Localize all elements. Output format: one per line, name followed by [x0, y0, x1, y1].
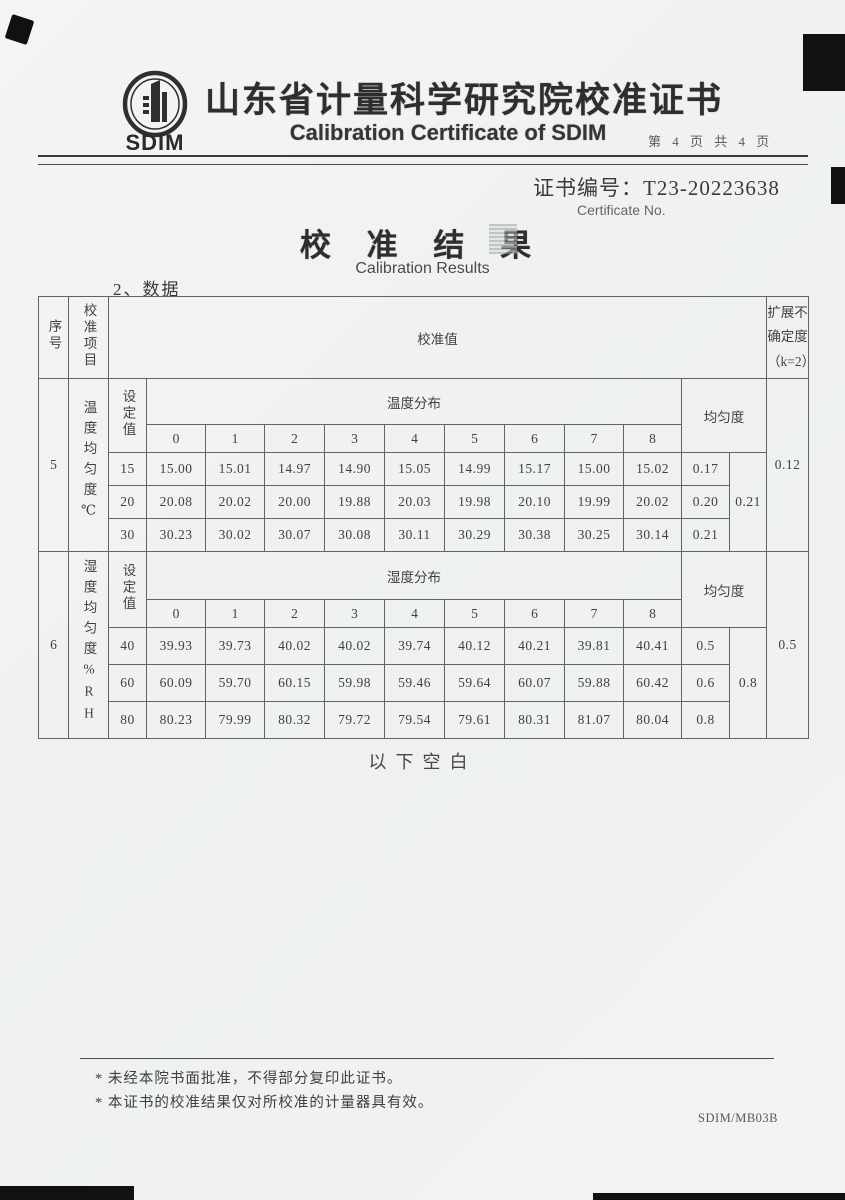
- scan-artifact-top-left: [5, 14, 35, 45]
- item-cell-label: 湿度均匀度%RH: [79, 559, 99, 728]
- measurement-value-cell: 80.32: [265, 702, 325, 739]
- uncertainty-value-cell: 0.5: [767, 552, 809, 739]
- uniformity-label-cell: 均匀度: [682, 379, 767, 453]
- measurement-value-cell: 30.02: [206, 519, 265, 552]
- certificate-title-cn: 山东省计量科学研究院校准证书: [205, 72, 750, 123]
- setpoint-value-cell: 80: [109, 702, 147, 739]
- calibration-results-title-cn: 校 准 结 果: [0, 220, 845, 265]
- measurement-value-cell: 39.74: [385, 628, 445, 665]
- table-section-6: 6湿度均匀度%RH设定值湿度分布均匀度0.50123456784039.9339…: [39, 552, 809, 739]
- measurement-value-cell: 20.10: [505, 486, 565, 519]
- overall-uniformity-cell: 0.21: [730, 453, 767, 552]
- measurement-value-cell: 39.73: [206, 628, 265, 665]
- position-header-cell: 5: [445, 600, 505, 628]
- position-header-cell: 0: [147, 425, 206, 453]
- position-header-cell: 2: [265, 600, 325, 628]
- measurement-value-cell: 30.29: [445, 519, 505, 552]
- measurement-value-cell: 15.00: [147, 453, 206, 486]
- setpoint-label-cell-label: 设定值: [118, 389, 138, 439]
- footnote-1: * 未经本院书面批准，不得部分复印此证书。: [95, 1067, 402, 1088]
- setpoint-label-cell: 设定值: [109, 552, 147, 628]
- measurement-value-cell: 14.90: [325, 453, 385, 486]
- measurement-value-cell: 30.14: [624, 519, 682, 552]
- certificate-number-label: 证书编号：: [533, 176, 643, 200]
- uncertainty-header-cell: 扩展不确定度 （k=2）: [767, 297, 809, 379]
- measurement-value-cell: 30.07: [265, 519, 325, 552]
- measurement-value-cell: 40.12: [445, 628, 505, 665]
- measurement-value-cell: 30.23: [147, 519, 206, 552]
- seq-cell: 5: [39, 379, 69, 552]
- measurement-value-cell: 80.23: [147, 702, 206, 739]
- position-header-cell: 1: [206, 425, 265, 453]
- uniformity-label-cell: 均匀度: [682, 552, 767, 628]
- sdim-logo: SDIM: [110, 70, 200, 156]
- measurement-value-cell: 40.21: [505, 628, 565, 665]
- position-header-cell: 1: [206, 600, 265, 628]
- seq-cell: 6: [39, 552, 69, 739]
- uniformity-value-cell: 0.17: [682, 453, 730, 486]
- measurement-value-cell: 59.70: [206, 665, 265, 702]
- certificate-number: 证书编号：T23-20223638: [533, 172, 780, 202]
- measurement-value-cell: 19.99: [565, 486, 624, 519]
- scan-artifact-top-right: [803, 34, 845, 91]
- setpoint-value-cell: 60: [109, 665, 147, 702]
- uniformity-value-cell: 0.6: [682, 665, 730, 702]
- measurement-value-cell: 79.72: [325, 702, 385, 739]
- measurement-value-cell: 15.01: [206, 453, 265, 486]
- position-header-cell: 3: [325, 425, 385, 453]
- measurement-value-cell: 60.09: [147, 665, 206, 702]
- uniformity-value-cell: 0.8: [682, 702, 730, 739]
- measurement-value-cell: 80.31: [505, 702, 565, 739]
- seq-header-label: 序号: [44, 319, 64, 352]
- scan-artifact-bottom-left: [0, 1186, 134, 1200]
- position-header-cell: 0: [147, 600, 206, 628]
- measurement-value-cell: 30.38: [505, 519, 565, 552]
- certificate-page: SDIM 山东省计量科学研究院校准证书 Calibration Certific…: [0, 0, 845, 1200]
- measurement-value-cell: 40.41: [624, 628, 682, 665]
- position-header-cell: 8: [624, 425, 682, 453]
- measurement-value-cell: 15.00: [565, 453, 624, 486]
- item-cell: 温度均匀度℃: [69, 379, 109, 552]
- data-row-set-40: 4039.9339.7340.0240.0239.7440.1240.2139.…: [39, 628, 809, 665]
- setpoint-value-cell: 15: [109, 453, 147, 486]
- seq-header-cell: 序号: [39, 297, 69, 379]
- item-header-label: 校准项目: [79, 303, 99, 369]
- item-cell-label: 温度均匀度℃: [79, 400, 99, 526]
- measurement-value-cell: 39.81: [565, 628, 624, 665]
- position-header-cell: 3: [325, 600, 385, 628]
- setpoint-value-cell: 30: [109, 519, 147, 552]
- setpoint-value-cell: 40: [109, 628, 147, 665]
- position-header-cell: 7: [565, 425, 624, 453]
- measurement-value-cell: 39.93: [147, 628, 206, 665]
- measurement-value-cell: 59.88: [565, 665, 624, 702]
- measurement-value-cell: 15.05: [385, 453, 445, 486]
- data-row-set-60: 6060.0959.7060.1559.9859.4659.6460.0759.…: [39, 665, 809, 702]
- sdim-logo-emblem: SDIM: [110, 70, 200, 156]
- scan-artifact-smudge: [489, 224, 517, 254]
- measurement-value-cell: 20.00: [265, 486, 325, 519]
- position-header-cell: 6: [505, 425, 565, 453]
- overall-uniformity-cell: 0.8: [730, 628, 767, 739]
- certificate-number-value: T23-20223638: [643, 176, 780, 200]
- item-header-cell: 校准项目: [69, 297, 109, 379]
- measurement-value-cell: 60.42: [624, 665, 682, 702]
- measurement-value-cell: 79.54: [385, 702, 445, 739]
- footnote-2: * 本证书的校准结果仅对所校准的计量器具有效。: [95, 1091, 433, 1112]
- measurement-value-cell: 15.17: [505, 453, 565, 486]
- certificate-number-en-label: Certificate No.: [577, 202, 666, 218]
- measurement-value-cell: 60.15: [265, 665, 325, 702]
- uniformity-value-cell: 0.21: [682, 519, 730, 552]
- position-header-cell: 5: [445, 425, 505, 453]
- footer-divider: [80, 1058, 774, 1059]
- uncertainty-value-cell: 0.12: [767, 379, 809, 552]
- data-row-set-30: 3030.2330.0230.0730.0830.1130.2930.3830.…: [39, 519, 809, 552]
- position-header-cell: 8: [624, 600, 682, 628]
- measurement-value-cell: 30.25: [565, 519, 624, 552]
- distribution-label-cell: 温度分布: [147, 379, 682, 425]
- measurement-value-cell: 14.97: [265, 453, 325, 486]
- setpoint-label-cell-label: 设定值: [118, 563, 138, 613]
- position-header-cell: 4: [385, 425, 445, 453]
- blank-below-note: 以下空白: [0, 748, 845, 774]
- measurement-value-cell: 20.02: [206, 486, 265, 519]
- position-header-cell: 6: [505, 600, 565, 628]
- scan-artifact-right-edge: [831, 167, 845, 204]
- measurement-value-cell: 80.04: [624, 702, 682, 739]
- data-row-set-80: 8080.2379.9980.3279.7279.5479.6180.3181.…: [39, 702, 809, 739]
- measurement-value-cell: 19.98: [445, 486, 505, 519]
- uniformity-value-cell: 0.20: [682, 486, 730, 519]
- measurement-value-cell: 59.98: [325, 665, 385, 702]
- distribution-header-row: 5温度均匀度℃设定值温度分布均匀度0.12: [39, 379, 809, 425]
- measurement-value-cell: 15.02: [624, 453, 682, 486]
- measurement-value-cell: 40.02: [325, 628, 385, 665]
- uniformity-value-cell: 0.5: [682, 628, 730, 665]
- calibration-table-wrapper: 序号 校准项目 校准值 扩展不确定度 （k=2） 5温度均匀度℃设定值温度分布均…: [38, 296, 809, 739]
- value-header-cell: 校准值: [109, 297, 767, 379]
- table-header-row: 序号 校准项目 校准值 扩展不确定度 （k=2）: [39, 297, 809, 379]
- measurement-value-cell: 19.88: [325, 486, 385, 519]
- setpoint-label-cell: 设定值: [109, 379, 147, 453]
- measurement-value-cell: 81.07: [565, 702, 624, 739]
- position-header-cell: 2: [265, 425, 325, 453]
- data-row-set-20: 2020.0820.0220.0019.8820.0319.9820.1019.…: [39, 486, 809, 519]
- measurement-value-cell: 14.99: [445, 453, 505, 486]
- certificate-title-en: Calibration Certificate of SDIM: [238, 120, 658, 146]
- measurement-value-cell: 30.11: [385, 519, 445, 552]
- header-divider: [38, 155, 808, 165]
- position-header-cell: 4: [385, 600, 445, 628]
- measurement-value-cell: 59.46: [385, 665, 445, 702]
- page-number-info: 第 4 页 共 4 页: [648, 131, 773, 150]
- table-section-5: 5温度均匀度℃设定值温度分布均匀度0.120123456781515.0015.…: [39, 379, 809, 552]
- distribution-label-cell: 湿度分布: [147, 552, 682, 600]
- position-header-cell: 7: [565, 600, 624, 628]
- measurement-value-cell: 79.61: [445, 702, 505, 739]
- measurement-value-cell: 60.07: [505, 665, 565, 702]
- measurement-value-cell: 59.64: [445, 665, 505, 702]
- measurement-value-cell: 30.08: [325, 519, 385, 552]
- svg-text:SDIM: SDIM: [126, 130, 185, 155]
- calibration-table: 序号 校准项目 校准值 扩展不确定度 （k=2） 5温度均匀度℃设定值温度分布均…: [38, 296, 809, 739]
- scan-artifact-bottom-right: [593, 1193, 845, 1200]
- measurement-value-cell: 20.02: [624, 486, 682, 519]
- item-cell: 湿度均匀度%RH: [69, 552, 109, 739]
- setpoint-value-cell: 20: [109, 486, 147, 519]
- data-row-set-15: 1515.0015.0114.9714.9015.0514.9915.1715.…: [39, 453, 809, 486]
- distribution-header-row: 6湿度均匀度%RH设定值湿度分布均匀度0.5: [39, 552, 809, 600]
- measurement-value-cell: 79.99: [206, 702, 265, 739]
- measurement-value-cell: 20.08: [147, 486, 206, 519]
- form-code: SDIM/MB03B: [698, 1111, 778, 1126]
- measurement-value-cell: 20.03: [385, 486, 445, 519]
- measurement-value-cell: 40.02: [265, 628, 325, 665]
